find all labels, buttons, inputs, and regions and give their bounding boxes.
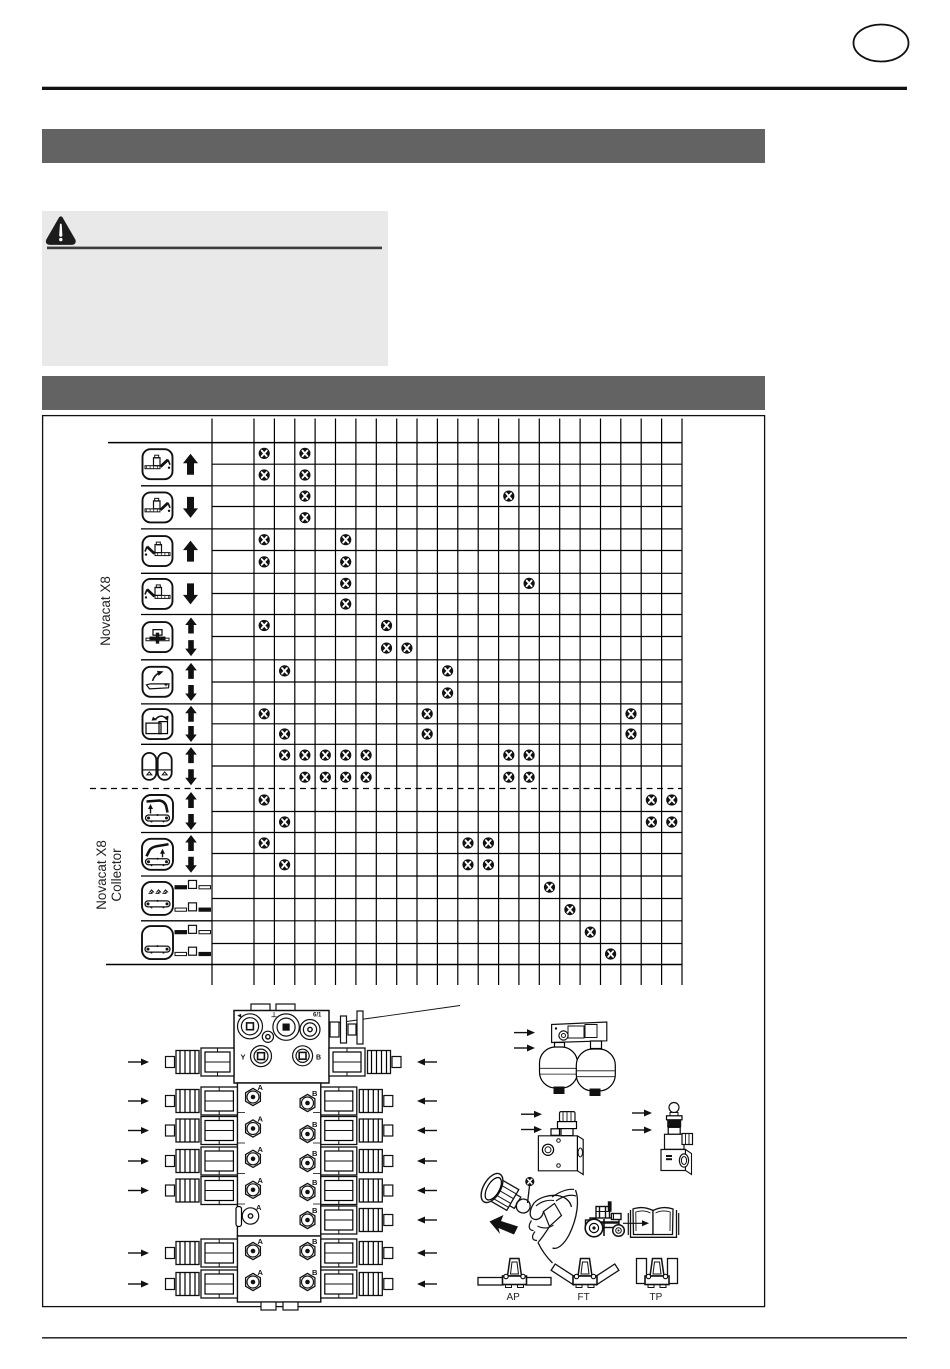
svg-text:A: A [258,1237,264,1246]
svg-text:B: B [312,1149,318,1158]
svg-text:B: B [312,1120,318,1129]
svg-text:FT: FT [578,1292,590,1303]
svg-text:Novacat X8: Novacat X8 [94,840,109,910]
svg-text:AP: AP [507,1292,521,1303]
svg-text:A: A [258,1115,264,1124]
svg-text:A: A [256,1203,262,1212]
svg-text:B: B [312,1089,318,1098]
svg-text:A: A [258,1145,264,1154]
svg-text:TP: TP [650,1292,663,1303]
svg-text:6/1: 6/1 [313,1013,322,1019]
svg-text:B: B [312,1237,318,1246]
svg-text:B: B [312,1268,318,1277]
svg-text:B: B [316,1055,321,1062]
svg-text:B: B [312,1178,318,1187]
svg-text:⊥: ⊥ [271,1011,277,1019]
svg-text:Novacat X8: Novacat X8 [98,576,113,646]
svg-text:A: A [258,1083,264,1092]
svg-text:◄: ◄ [236,1013,242,1020]
svg-text:Y: Y [241,1053,246,1062]
svg-text:A: A [258,1176,264,1185]
svg-text:A: A [258,1268,264,1277]
svg-text:Collector: Collector [109,848,124,902]
svg-text:B: B [312,1206,318,1215]
